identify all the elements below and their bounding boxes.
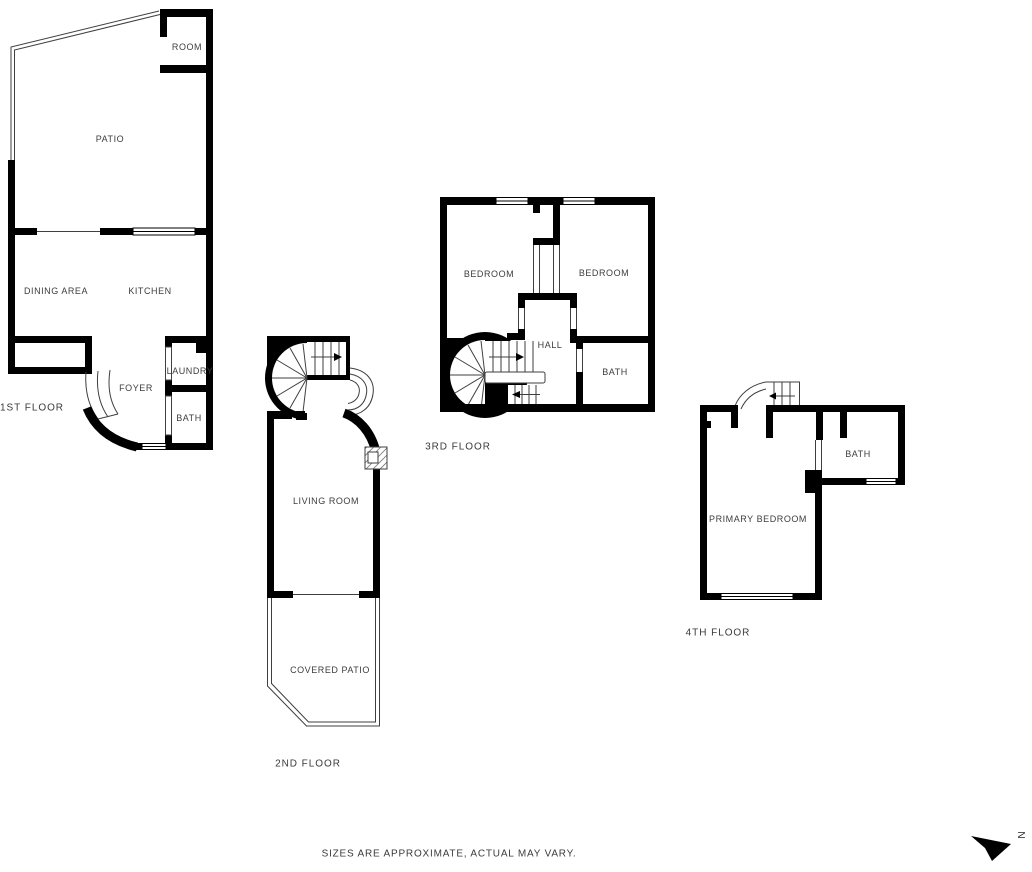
room-label-living-room: LIVING ROOM: [293, 496, 359, 506]
floor-label-1st: 1ST FLOOR: [0, 403, 64, 414]
room-label-bedroom-right: BEDROOM: [579, 268, 629, 278]
room-label-bedroom-left: BEDROOM: [464, 269, 514, 279]
room-label-bath-3: BATH: [602, 367, 628, 377]
room-label-foyer: FOYER: [119, 383, 153, 393]
floor-label-3rd: 3RD FLOOR: [425, 442, 491, 453]
room-label-dining-area: DINING AREA: [24, 286, 88, 296]
disclaimer-text: SIZES ARE APPROXIMATE, ACTUAL MAY VARY.: [322, 849, 577, 860]
room-label-covered-patio: COVERED PATIO: [290, 665, 370, 675]
north-letter: N: [1015, 831, 1026, 838]
floor-3-plan: [440, 197, 655, 418]
north-arrow: N: [971, 831, 1026, 861]
floorplan-page: N ROOM PATIO DINING AREA KITCHEN LAUNDRY…: [0, 0, 1032, 872]
room-label-kitchen: KITCHEN: [128, 286, 171, 296]
room-label-bath-1: BATH: [176, 413, 202, 423]
room-label-bath-4: BATH: [845, 449, 871, 459]
room-label-patio: PATIO: [96, 134, 124, 144]
floor-label-2nd: 2ND FLOOR: [275, 759, 341, 770]
floor-label-4th: 4TH FLOOR: [686, 628, 751, 639]
room-label-laundry: LAUNDRY: [167, 366, 214, 376]
floorplan-drawing: N: [0, 0, 1032, 872]
floor-4-plan: [700, 382, 905, 600]
floor-1-plan: [8, 9, 213, 450]
room-label-hall: HALL: [538, 340, 563, 350]
room-label-primary-bedroom: PRIMARY BEDROOM: [709, 514, 807, 524]
room-label-room: ROOM: [172, 42, 202, 52]
